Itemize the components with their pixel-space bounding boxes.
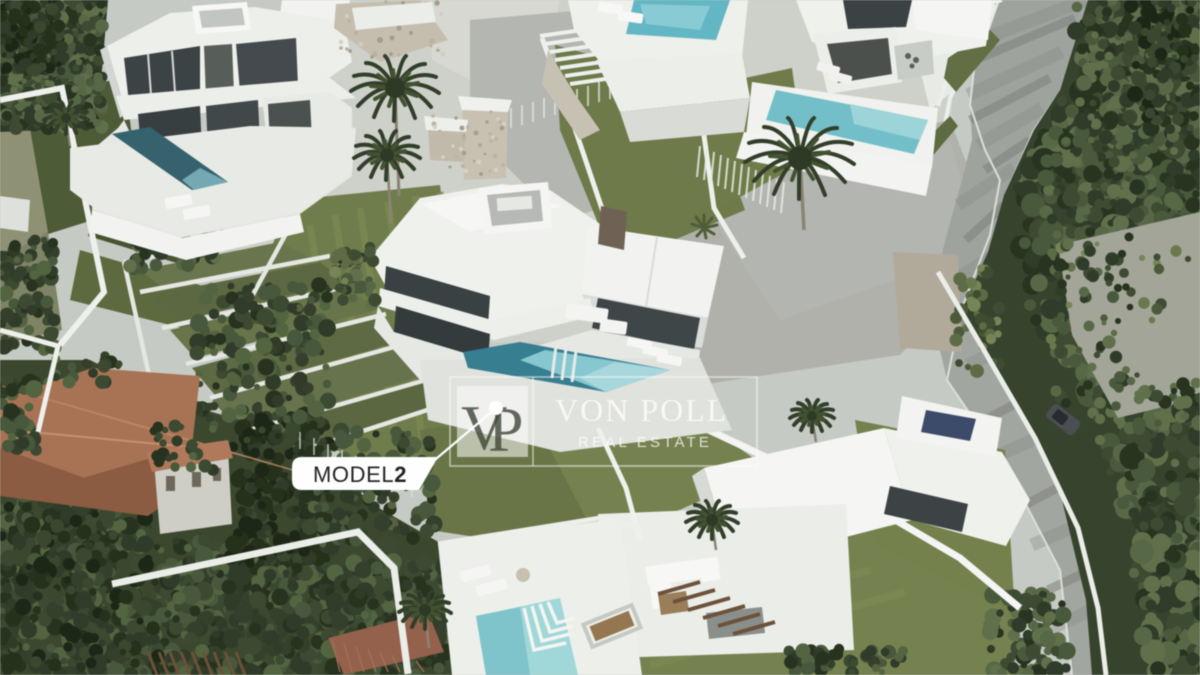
svg-text:VON POLL: VON POLL [555,392,728,428]
svg-text:REAL ESTATE: REAL ESTATE [578,434,712,451]
svg-text:MODEL2: MODEL2 [313,462,407,487]
